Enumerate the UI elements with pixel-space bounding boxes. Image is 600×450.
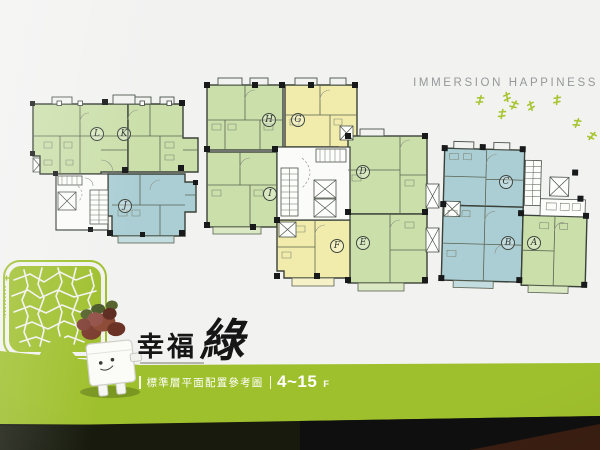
unit-L xyxy=(33,104,128,174)
unit-badge-I: I xyxy=(263,187,277,201)
unit-C xyxy=(443,148,524,207)
sprout-glyphs xyxy=(476,92,597,141)
floor-plan-cluster-center xyxy=(204,78,439,291)
unit-badge-E: E xyxy=(356,236,370,250)
floor-suffix: F xyxy=(323,379,329,392)
unit-badge-K: K xyxy=(117,127,131,141)
project-title-prefix: 幸福 xyxy=(137,325,197,364)
footer-caption-line: 標準層平面配置參考圖 4~15 F xyxy=(139,372,329,392)
title-tagline-rule xyxy=(140,362,204,364)
floor-range: 4~15 xyxy=(277,372,317,392)
footer-caption: 標準層平面配置參考圖 xyxy=(147,375,264,390)
divider-bar xyxy=(270,376,272,389)
unit-badge-A: A xyxy=(527,236,541,250)
unit-badge-L: L xyxy=(90,127,104,141)
unit-badge-H: H xyxy=(262,113,276,127)
brochure-page: IMMERSION HAPPINESS 幸福 綠 標準層平面配置參考圖 4~15… xyxy=(0,0,600,450)
unit-badge-D: D xyxy=(356,165,370,179)
unit-badge-F: F xyxy=(330,239,344,253)
floor-plan-cluster-east xyxy=(438,141,591,294)
unit-badge-B: B xyxy=(501,236,515,250)
unit-badge-G: G xyxy=(291,113,305,127)
divider-bar xyxy=(139,376,141,389)
project-title-script: 綠 xyxy=(199,318,244,363)
project-title: 幸福 綠 xyxy=(137,318,244,364)
headline-text: IMMERSION HAPPINESS xyxy=(413,77,598,89)
unit-badge-C: C xyxy=(499,175,513,189)
floor-plan-cluster-west xyxy=(30,95,198,243)
unit-K xyxy=(128,104,198,172)
unit-badge-J: J xyxy=(118,199,132,213)
